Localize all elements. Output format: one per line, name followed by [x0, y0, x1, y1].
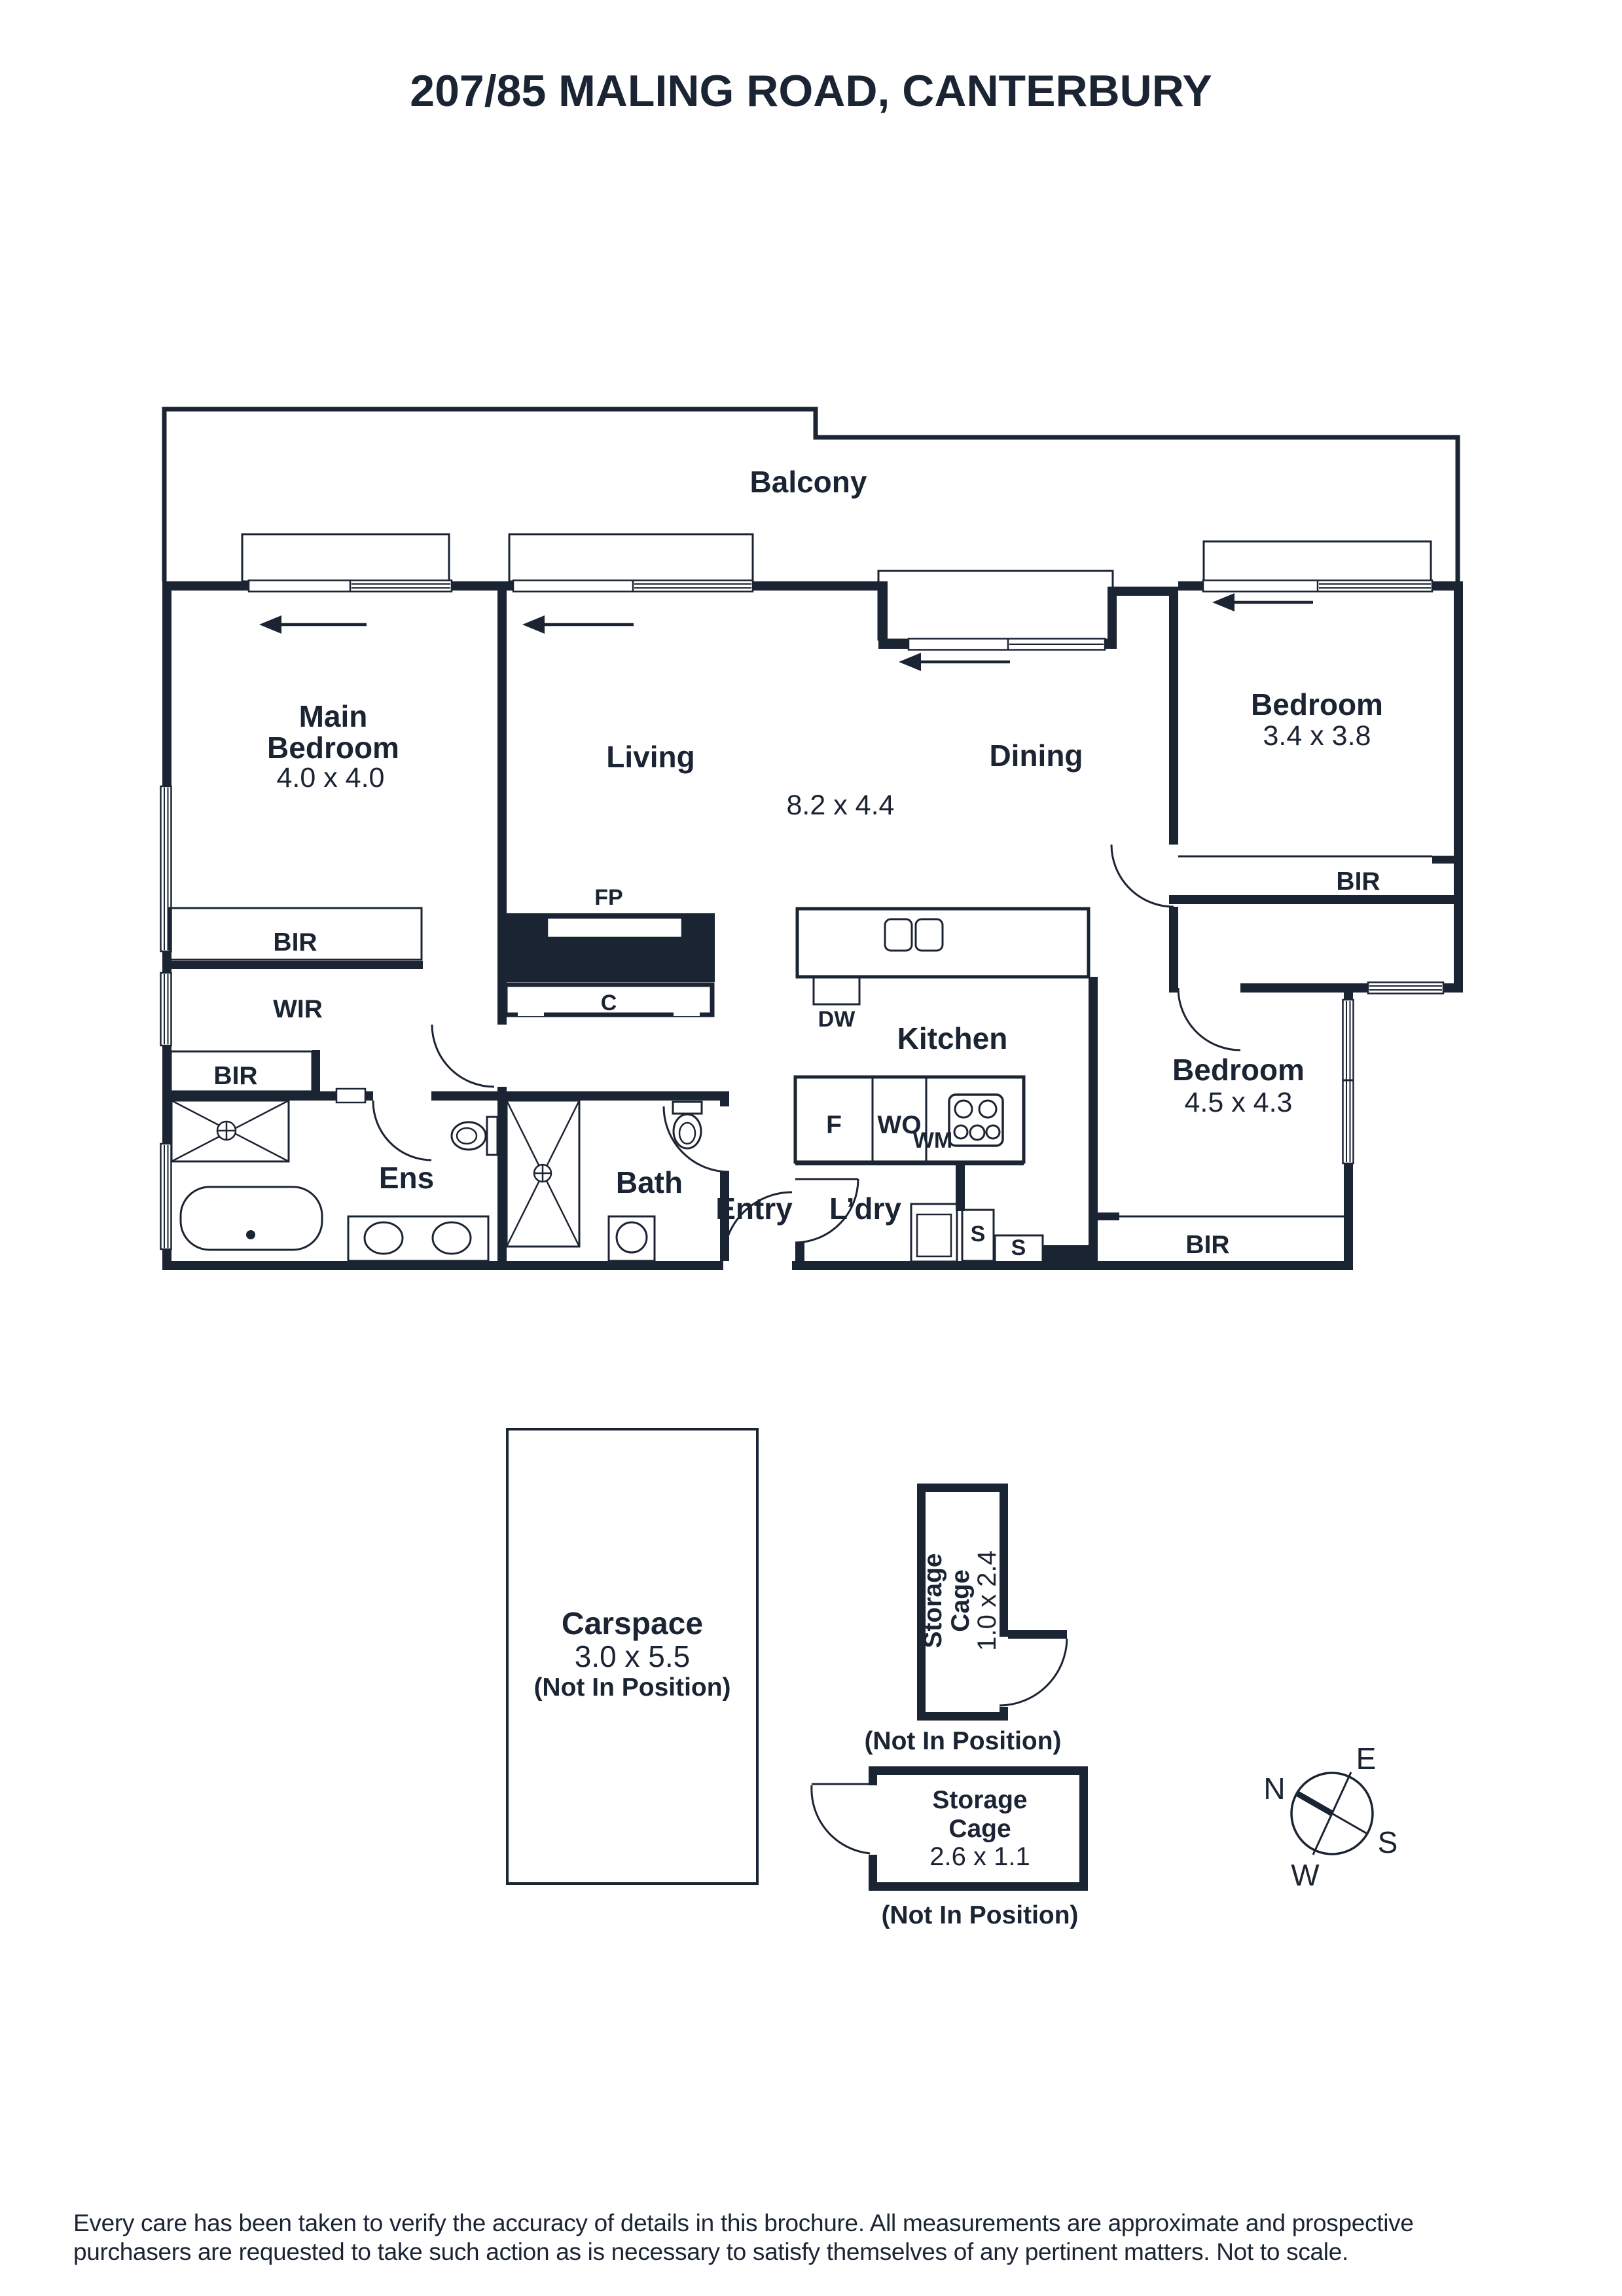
label-fridge: F [826, 1111, 842, 1139]
wall [1344, 1163, 1353, 1270]
wall [753, 581, 888, 591]
label-carspace-note: (Not In Position) [533, 1673, 730, 1702]
label-storage1-note: (Not In Position) [864, 1727, 1061, 1755]
wall [869, 1766, 877, 1785]
label-storage2-2: Cage [948, 1815, 1011, 1843]
disclaimer-line1: Every care has been taken to verify the … [73, 2210, 1414, 2236]
label-ldry: L’dry [829, 1192, 901, 1226]
label-wir: WIR [273, 995, 323, 1023]
wall [1169, 591, 1178, 845]
label-bir-bed3: BIR [1185, 1231, 1229, 1259]
dishwasher-icon [814, 977, 859, 1004]
compass-needle [1297, 1793, 1332, 1813]
compass-n: N [1263, 1772, 1285, 1806]
label-bedroom3-dims: 4.5 x 4.3 [1185, 1087, 1293, 1118]
wall [1043, 1245, 1098, 1270]
label-storage2-dims: 2.6 x 1.1 [929, 1842, 1030, 1871]
label-main-bedroom: Main [299, 699, 368, 733]
wall-niche [336, 1089, 365, 1102]
wall [795, 1243, 804, 1261]
toilet-icon [673, 1102, 702, 1148]
door-arc [664, 1106, 729, 1172]
balcony-panel [1204, 541, 1431, 581]
compass-s: S [1378, 1825, 1398, 1859]
window-icon [513, 581, 753, 592]
window-icon [249, 581, 452, 592]
compass-line [1332, 1813, 1367, 1834]
wall [1108, 589, 1117, 642]
wall [162, 581, 249, 591]
wall [1169, 907, 1178, 993]
toilet-icon [452, 1117, 497, 1155]
wall [452, 581, 513, 591]
fireplace-icon [503, 913, 715, 982]
shower-icon [171, 1101, 289, 1161]
door-arc [373, 1101, 431, 1160]
basin-icon [609, 1216, 655, 1261]
door-arc [432, 1025, 494, 1087]
label-carspace-dims: 3.0 x 5.5 [575, 1639, 690, 1673]
label-bir-main: BIR [273, 928, 317, 957]
wall [1079, 1766, 1088, 1891]
floorplan-page: 207/85 MALING ROAD, CANTERBURY Balcony [0, 0, 1622, 2296]
sliding-door-icon [909, 639, 1105, 650]
wall [869, 1882, 1088, 1891]
wall [1240, 983, 1344, 993]
wall [1178, 581, 1203, 591]
window-icon [1203, 581, 1432, 592]
wall [497, 1087, 507, 1261]
wall [1008, 1630, 1067, 1639]
washing-machine-icon [911, 1204, 957, 1262]
label-main-bedroom-2: Bedroom [267, 731, 399, 765]
label-storage2: Storage [932, 1786, 1027, 1814]
label-bedroom2-dims: 3.4 x 3.8 [1263, 720, 1371, 752]
balcony-panel [242, 534, 449, 581]
arrow-icon [522, 615, 634, 634]
compass-icon: N E S W [1263, 1741, 1397, 1892]
wall [917, 1712, 1008, 1721]
disclaimer: Every care has been taken to verify the … [73, 2210, 1414, 2265]
door-arc [1000, 1639, 1067, 1705]
wall [431, 1091, 729, 1101]
door-arc [812, 1785, 870, 1853]
label-closet: C [601, 991, 617, 1015]
label-dishwasher: DW [818, 1007, 856, 1032]
arrow-icon [259, 615, 367, 634]
window-icon [161, 1144, 171, 1249]
wall [162, 961, 423, 969]
wall [1169, 983, 1178, 993]
label-washing-machine: WM [913, 1128, 952, 1153]
wall [869, 1855, 877, 1891]
wall [162, 1261, 723, 1270]
label-bedroom2: Bedroom [1251, 687, 1383, 721]
wall [365, 1091, 373, 1101]
window-icon [161, 973, 171, 1046]
wall [869, 1766, 1088, 1775]
wall [917, 1484, 1008, 1492]
label-main-bedroom-dims: 4.0 x 4.0 [277, 762, 385, 793]
label-s2: S [1011, 1235, 1026, 1260]
shower-icon [507, 1101, 579, 1247]
wall [878, 589, 888, 644]
disclaimer-line2: purchasers are requested to take such ac… [73, 2238, 1348, 2265]
arrows [259, 593, 1313, 671]
balcony-panel [509, 534, 753, 581]
page-title: 207/85 MALING ROAD, CANTERBURY [410, 66, 1212, 116]
wall [720, 1091, 729, 1106]
label-kitchen: Kitchen [897, 1021, 1008, 1055]
storage-cage-1: Storage Cage 1.0 x 2.4 (Not In Position) [864, 1484, 1067, 1755]
compass-line [1313, 1772, 1351, 1855]
label-carspace: Carspace [562, 1607, 703, 1641]
label-storage2-note: (Not In Position) [881, 1901, 1078, 1929]
label-dining: Dining [989, 738, 1083, 773]
arrow-icon [899, 653, 1010, 671]
compass-e: E [1356, 1741, 1377, 1776]
label-entry: Entry [715, 1192, 793, 1226]
wall [162, 1091, 336, 1101]
wall [162, 581, 171, 786]
wall [878, 640, 909, 649]
label-ens: Ens [379, 1161, 434, 1195]
label-storage1: Storage [919, 1553, 947, 1648]
storage-cage-2: Storage Cage 2.6 x 1.1 (Not In Position) [812, 1766, 1088, 1929]
window-icon [1343, 1000, 1354, 1163]
arrow-icon [1212, 593, 1313, 611]
label-storage1-dims: 1.0 x 2.4 [973, 1550, 1001, 1650]
label-balcony: Balcony [750, 465, 867, 499]
wall [1108, 587, 1178, 596]
door-arc [1178, 988, 1240, 1050]
wall [1443, 983, 1463, 993]
wall [1432, 856, 1454, 864]
label-living: Living [606, 740, 694, 774]
floorplan-drawing: 207/85 MALING ROAD, CANTERBURY Balcony [0, 0, 1622, 2296]
balcony-outline [164, 409, 1458, 640]
label-living-dining-dims: 8.2 x 4.4 [787, 790, 895, 821]
label-bedroom3: Bedroom [1172, 1053, 1305, 1087]
door-arc [1111, 845, 1174, 907]
label-storage1-2: Cage [946, 1569, 975, 1631]
vanity-icon [348, 1216, 488, 1261]
wall [1454, 581, 1463, 992]
label-bir-bed2: BIR [1336, 867, 1380, 896]
window-icon [1368, 983, 1443, 994]
label-fireplace: FP [594, 885, 622, 910]
wall [1089, 977, 1098, 1245]
wall [1169, 895, 1454, 904]
label-bath: Bath [616, 1165, 683, 1199]
label-s1: S [971, 1222, 986, 1247]
wall [1344, 983, 1353, 1000]
bathtub-icon [181, 1187, 322, 1250]
compass-w: W [1291, 1858, 1320, 1892]
label-bir-wir: BIR [213, 1062, 257, 1090]
carspace: Carspace 3.0 x 5.5 (Not In Position) [507, 1429, 757, 1884]
balcony-panel [878, 571, 1113, 640]
